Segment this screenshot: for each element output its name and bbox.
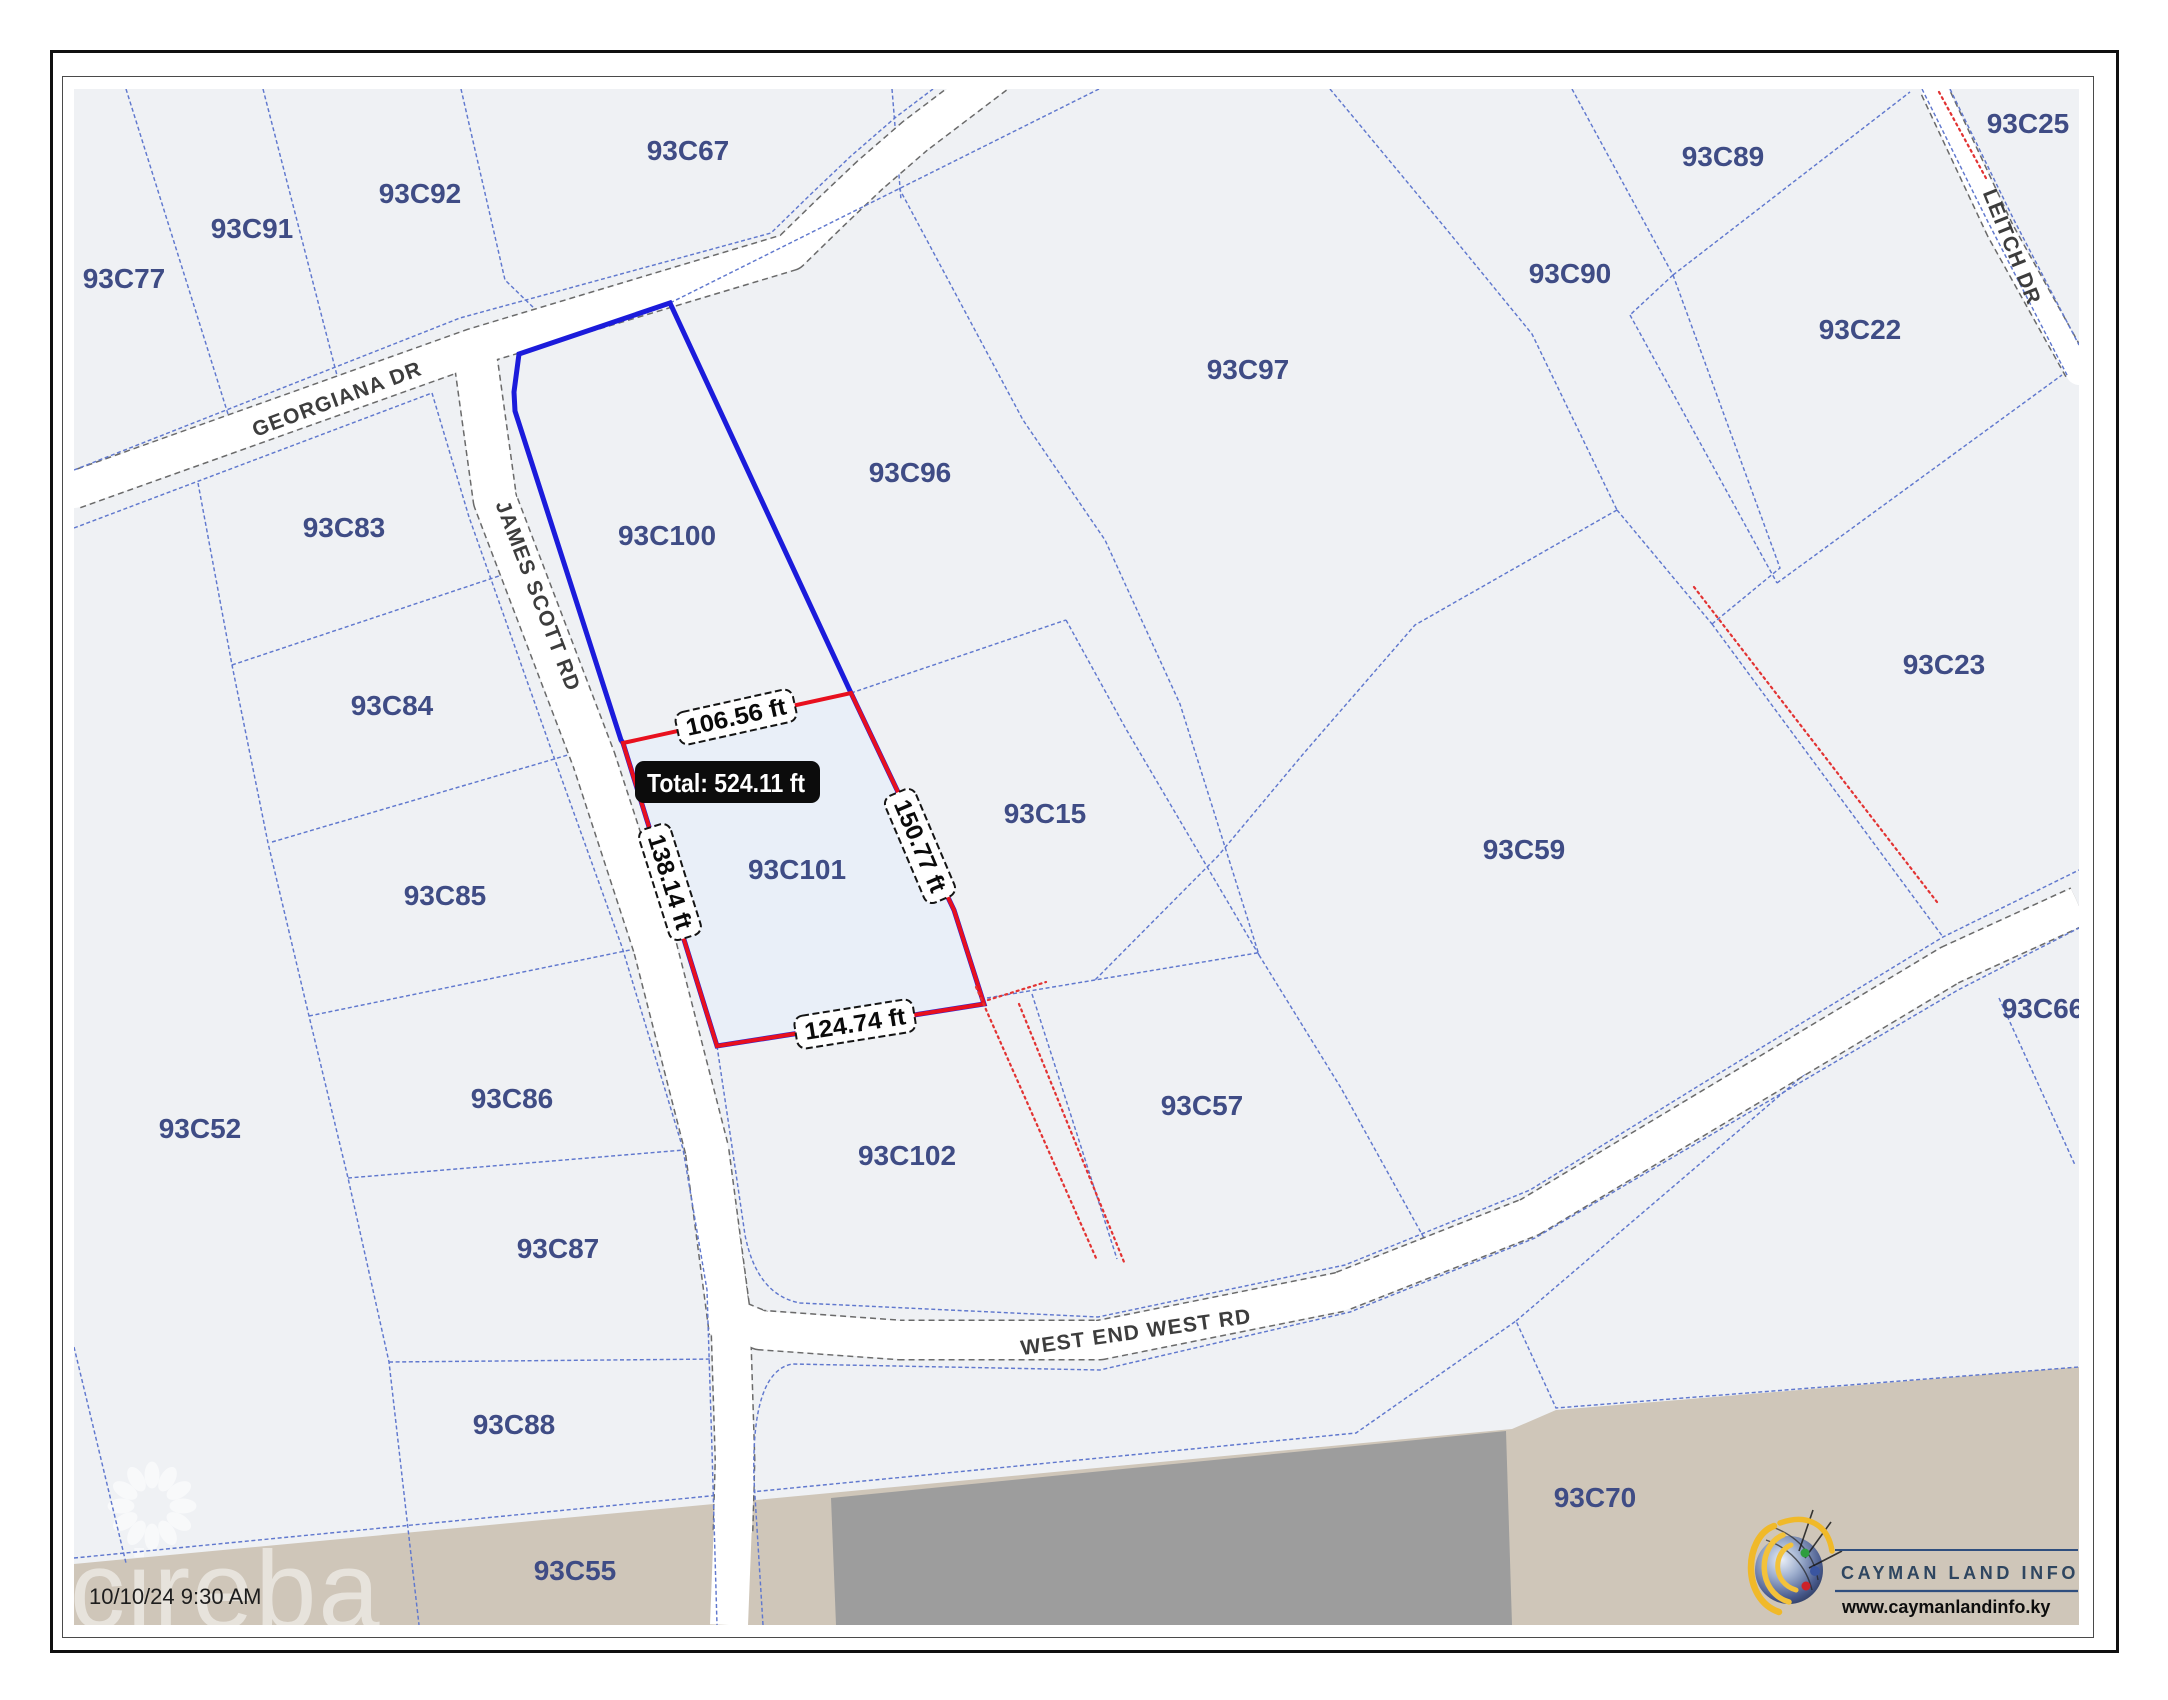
svg-text:93C91: 93C91 [211, 213, 294, 244]
svg-text:93C85: 93C85 [404, 880, 487, 911]
svg-text:93C70: 93C70 [1554, 1482, 1637, 1513]
svg-text:93C88: 93C88 [473, 1409, 556, 1440]
svg-text:93C97: 93C97 [1207, 354, 1290, 385]
svg-text:93C87: 93C87 [517, 1233, 600, 1264]
svg-text:93C52: 93C52 [159, 1113, 242, 1144]
svg-text:93C22: 93C22 [1819, 314, 1902, 345]
svg-text:93C67: 93C67 [647, 135, 730, 166]
svg-text:93C83: 93C83 [303, 512, 386, 543]
svg-text:93C89: 93C89 [1682, 141, 1765, 172]
svg-text:93C77: 93C77 [83, 263, 166, 294]
svg-text:Total: 524.11 ft: Total: 524.11 ft [647, 768, 805, 798]
svg-text:93C55: 93C55 [534, 1555, 617, 1586]
svg-text:93C101: 93C101 [748, 854, 846, 885]
svg-text:93C23: 93C23 [1903, 649, 1986, 680]
svg-text:93C100: 93C100 [618, 520, 716, 551]
svg-text:93C66: 93C66 [2002, 993, 2079, 1024]
svg-text:93C86: 93C86 [471, 1083, 554, 1114]
svg-text:10/10/24 9:30 AM: 10/10/24 9:30 AM [89, 1584, 261, 1609]
svg-text:www.caymanlandinfo.ky: www.caymanlandinfo.ky [1841, 1597, 2050, 1617]
svg-text:93C15: 93C15 [1004, 798, 1087, 829]
svg-text:93C57: 93C57 [1161, 1090, 1244, 1121]
svg-text:93C92: 93C92 [379, 178, 462, 209]
svg-text:93C96: 93C96 [869, 457, 952, 488]
svg-text:93C59: 93C59 [1483, 834, 1566, 865]
svg-text:93C102: 93C102 [858, 1140, 956, 1171]
svg-text:CAYMAN LAND INFO: CAYMAN LAND INFO [1841, 1563, 2079, 1583]
svg-text:93C25: 93C25 [1987, 108, 2070, 139]
svg-text:93C84: 93C84 [351, 690, 434, 721]
svg-text:93C90: 93C90 [1529, 258, 1612, 289]
